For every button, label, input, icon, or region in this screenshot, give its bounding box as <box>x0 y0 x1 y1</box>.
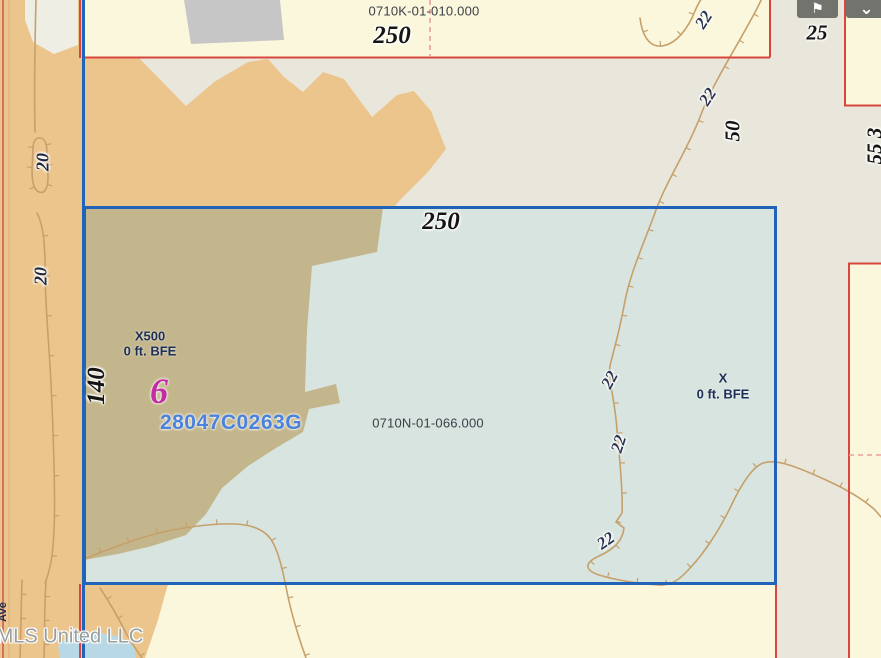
pin-button[interactable]: ⚑ <box>797 0 838 18</box>
collapse-button[interactable]: ⌄ <box>846 0 881 18</box>
contour-tick <box>52 556 57 557</box>
contour-tick <box>614 403 619 404</box>
parcel-top-fill <box>82 0 770 58</box>
pin-icon: ⚑ <box>811 2 824 16</box>
flood-zone-left-strip <box>0 0 82 658</box>
contour-tick <box>43 235 48 236</box>
parcel-bottomright-fill <box>849 263 881 658</box>
parcel-south-fill <box>82 584 776 658</box>
building-footprint <box>184 0 284 44</box>
map-canvas <box>0 0 881 658</box>
contour-tick <box>186 523 187 528</box>
chevron-down-icon: ⌄ <box>859 3 873 16</box>
map-viewport[interactable]: 0710K-01-010.0002502555 3202014050250222… <box>0 0 881 658</box>
